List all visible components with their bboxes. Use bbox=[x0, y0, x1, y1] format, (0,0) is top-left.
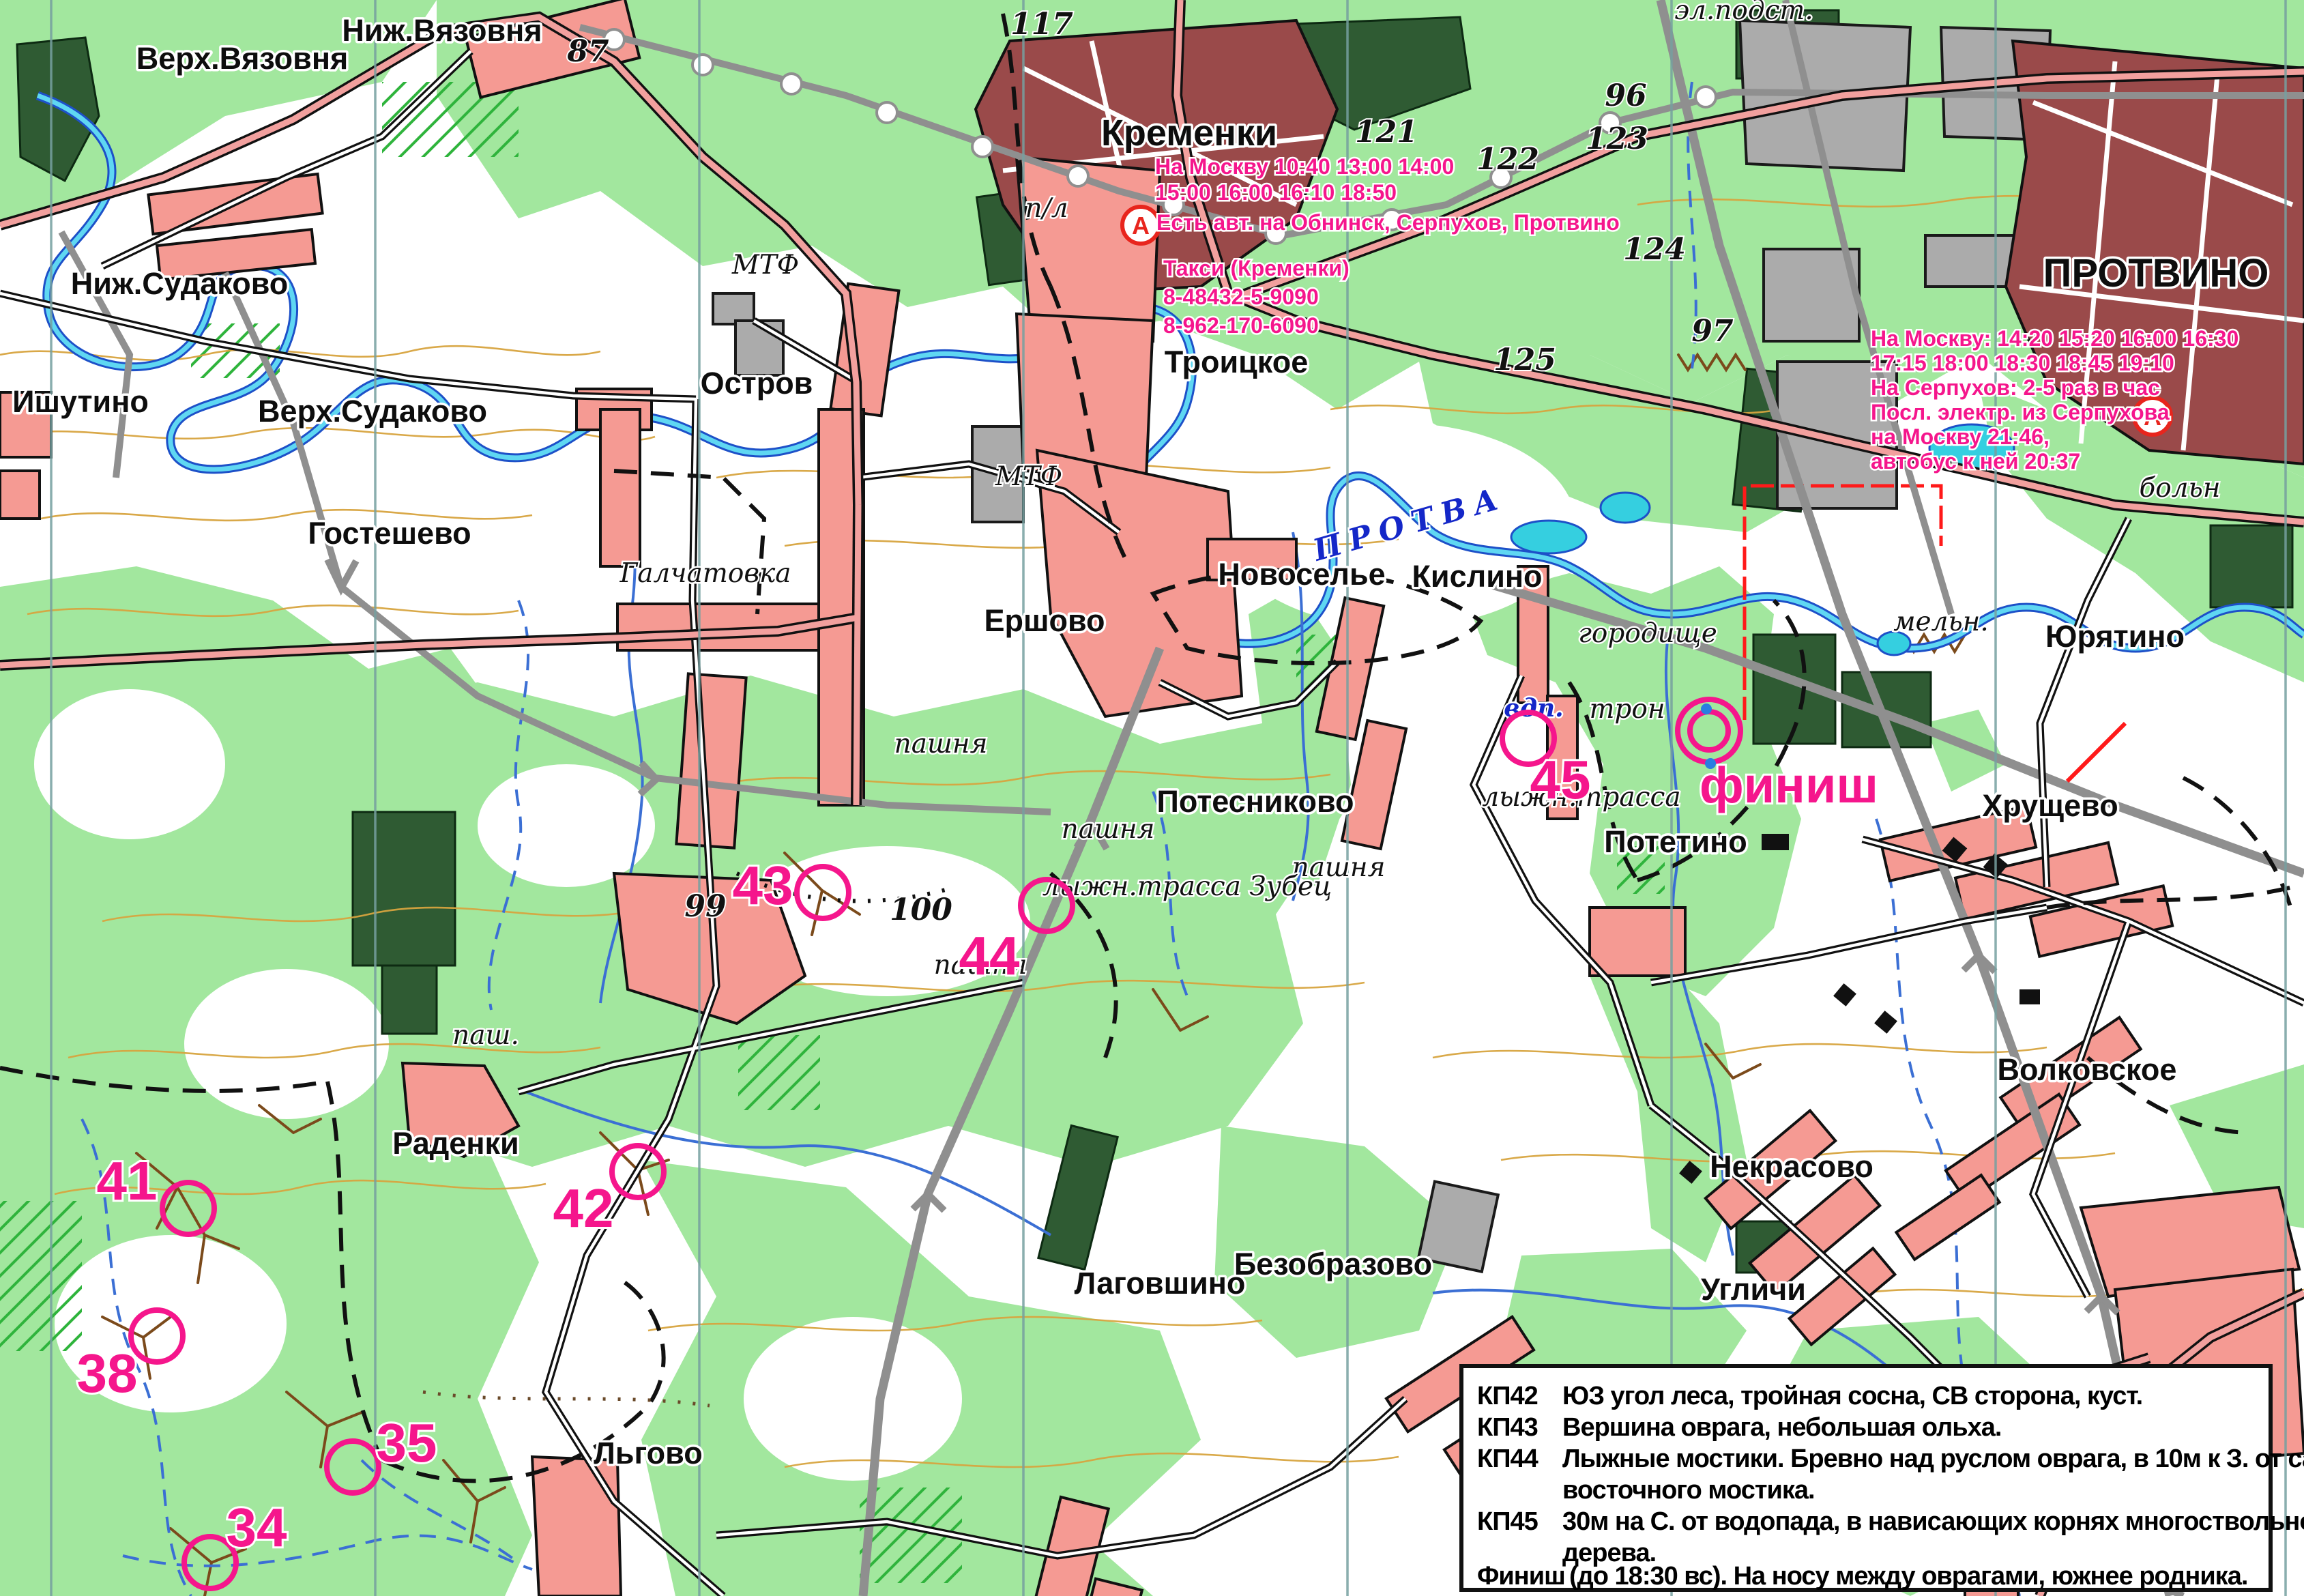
waterhole-dot bbox=[1701, 703, 1712, 714]
feature-label: паш. bbox=[452, 1020, 519, 1051]
town-label: Троицкое bbox=[1165, 345, 1309, 379]
map-canvas: Ниж.ВязовняВерх.ВязовняНиж.СудаковоИшути… bbox=[0, 0, 2304, 1596]
town-label: Кременки bbox=[1101, 113, 1277, 154]
schedule-line: 17:15 18:00 18:30 18:45 19:10 bbox=[1871, 351, 2174, 375]
schedule-line: На Москву 10:40 13:00 14:00 bbox=[1155, 154, 1454, 179]
town-label: Потетино bbox=[1604, 824, 1747, 859]
finish-label: финиш bbox=[1700, 757, 1878, 813]
elevation-label: 87 bbox=[566, 34, 609, 69]
elevation-label: 125 bbox=[1493, 343, 1556, 377]
town-label: Безобразово bbox=[1234, 1247, 1432, 1281]
schedule-line: На Москву: 14:20 15:20 16:00 16:30 bbox=[1871, 326, 2239, 351]
taxi-line: Такси (Кременки) bbox=[1163, 256, 1350, 280]
control-number: 35 bbox=[377, 1412, 437, 1473]
schedule-line: Посл. электр. из Серпухова bbox=[1871, 400, 2170, 424]
topo-map: Ниж.ВязовняВерх.ВязовняНиж.СудаковоИшути… bbox=[0, 0, 2304, 1596]
schedule-line: Есть авт. на Обнинск, Серпухов, Протвино bbox=[1156, 210, 1620, 235]
town-label: Кислино bbox=[1412, 559, 1542, 594]
legend-text: восточного мостика. bbox=[1562, 1476, 1815, 1505]
feature-label: мельн. bbox=[1893, 607, 1989, 637]
feature-label: МТФ bbox=[731, 250, 799, 280]
town-label: Остров bbox=[701, 366, 813, 401]
control-number: 41 bbox=[97, 1150, 158, 1211]
control-number: 43 bbox=[733, 855, 793, 916]
town-label: ПРОТВИНО bbox=[2043, 251, 2269, 295]
schedule-line: автобус к ней 20:37 bbox=[1871, 449, 2080, 474]
taxi-line: 8-962-170-6090 bbox=[1163, 313, 1319, 338]
town-label: Верх.Вязовня bbox=[136, 41, 349, 76]
town-label: Ниж.Вязовня bbox=[342, 13, 542, 48]
legend-label: Финиш bbox=[1477, 1562, 1565, 1591]
feature-label: городище bbox=[1578, 618, 1717, 649]
legend-text: (до 18:30 вс). На носу между оврагами, ю… bbox=[1569, 1562, 2247, 1591]
elevation-label: 117 bbox=[1010, 7, 1073, 42]
town-label: Новоселье bbox=[1218, 557, 1385, 592]
elevation-label: 123 bbox=[1586, 121, 1648, 156]
feature-label: лыжн.трасса Зубец bbox=[1042, 871, 1332, 902]
town-label: Хрущево bbox=[1982, 788, 2118, 823]
elevation-label: 121 bbox=[1355, 115, 1418, 149]
elevation-label: 122 bbox=[1476, 142, 1539, 177]
legend-label: КП42 bbox=[1477, 1382, 1538, 1410]
control-number: 42 bbox=[553, 1178, 614, 1238]
legend-label: КП44 bbox=[1477, 1445, 1539, 1473]
legend-text: Вершина оврага, небольшая ольха. bbox=[1562, 1413, 2001, 1442]
town-label: Ершово bbox=[984, 603, 1105, 638]
legend-label: КП43 bbox=[1477, 1413, 1538, 1442]
elevation-label: 100 bbox=[890, 893, 952, 927]
feature-label: эл.подст. bbox=[1674, 0, 1813, 26]
bus-stop-letter: А bbox=[1132, 212, 1150, 240]
schedule-line: на Москву 21:46, bbox=[1871, 424, 2050, 449]
control-number: 38 bbox=[77, 1343, 138, 1404]
town-label: Волковское bbox=[1998, 1052, 2177, 1087]
town-label: Лаговшино bbox=[1075, 1266, 1246, 1301]
town-label: Верх.Судаково bbox=[258, 394, 487, 429]
town-label: Потесниково bbox=[1156, 784, 1354, 819]
schedule-line: 15:00 16:00 16:10 18:50 bbox=[1155, 180, 1397, 205]
town-label: Раденки bbox=[392, 1126, 519, 1161]
feature-label: больн bbox=[2139, 473, 2220, 504]
legend-text: ЮЗ угол леса, тройная сосна, СВ сторона,… bbox=[1562, 1382, 2142, 1410]
elevation-label: 97 bbox=[1691, 314, 1734, 349]
feature-label: п/л bbox=[1025, 193, 1068, 224]
control-number: 45 bbox=[1530, 749, 1591, 810]
legend-text: 30м на С. от водопада, в нависающих корн… bbox=[1562, 1507, 2304, 1536]
feature-label: МТФ bbox=[995, 461, 1062, 492]
town-label: Гостешево bbox=[308, 516, 471, 551]
legend-text: Лыжные мостики. Бревно над руслом оврага… bbox=[1562, 1445, 2304, 1473]
feature-label: пашня bbox=[894, 729, 988, 759]
town-label: Ишутино bbox=[12, 384, 149, 419]
taxi-line: 8-48432-5-9090 bbox=[1163, 285, 1319, 309]
elevation-label: 99 bbox=[684, 889, 726, 924]
control-descriptions-legend: КП42 ЮЗ угол леса, тройная сосна, СВ сто… bbox=[1461, 1366, 2304, 1591]
legend-label: КП45 bbox=[1477, 1507, 1539, 1536]
feature-label: Галчатовка bbox=[619, 558, 791, 589]
elevation-label: 96 bbox=[1605, 78, 1646, 113]
feature-label: пашня bbox=[1062, 814, 1155, 845]
town-label: Некрасово bbox=[1710, 1149, 1873, 1184]
town-label: Угличи bbox=[1701, 1272, 1806, 1307]
control-number: 34 bbox=[227, 1497, 287, 1558]
town-label: Юрятино bbox=[2045, 619, 2185, 654]
schedule-line: На Серпухов: 2-5 раз в час bbox=[1871, 375, 2160, 400]
control-number: 44 bbox=[959, 925, 1020, 986]
town-label: Ниж.Судаково bbox=[71, 266, 289, 301]
town-label: Льгово bbox=[594, 1436, 702, 1470]
feature-label: трон bbox=[1589, 694, 1665, 725]
elevation-label: 124 bbox=[1623, 232, 1686, 267]
